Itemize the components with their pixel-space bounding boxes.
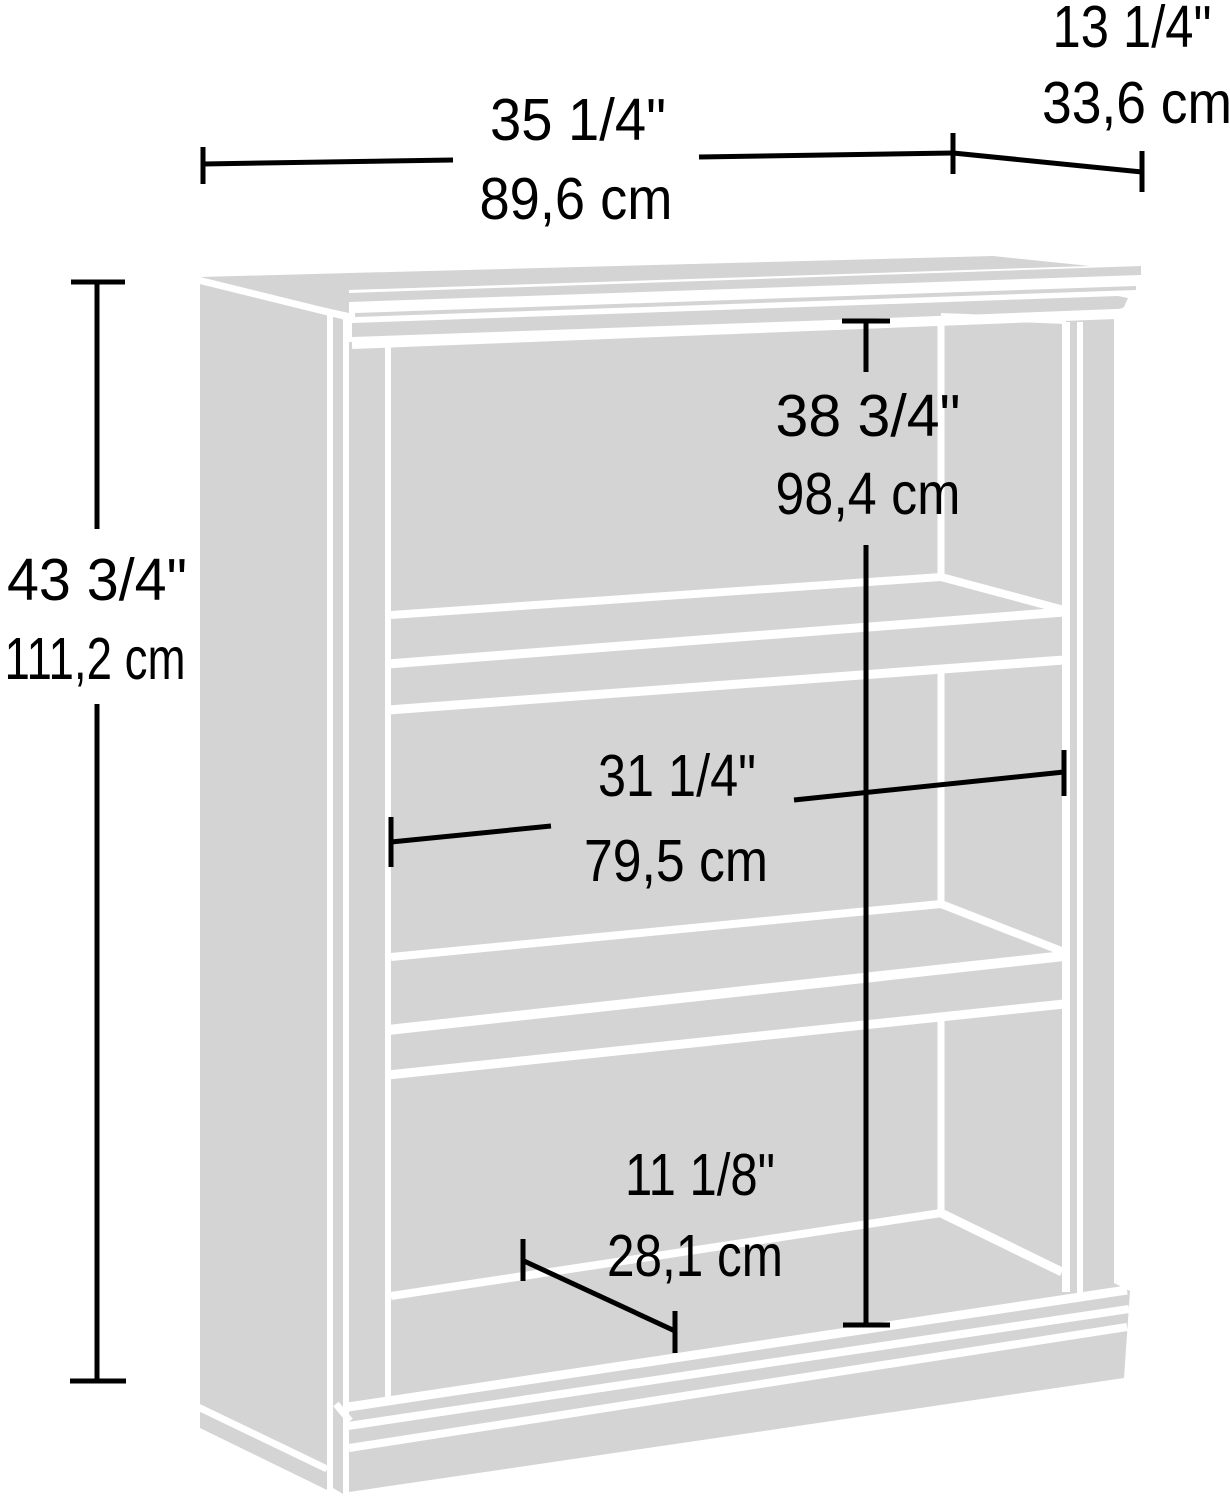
- svg-text:38 3/4": 38 3/4": [776, 383, 961, 449]
- svg-text:111,2 cm: 111,2 cm: [5, 626, 186, 692]
- svg-text:79,5 cm: 79,5 cm: [584, 828, 768, 894]
- svg-text:89,6 cm: 89,6 cm: [480, 166, 673, 232]
- svg-text:43 3/4": 43 3/4": [7, 547, 187, 613]
- svg-text:13 1/4": 13 1/4": [1053, 0, 1212, 60]
- svg-text:33,6 cm: 33,6 cm: [1042, 70, 1230, 136]
- svg-text:31 1/4": 31 1/4": [598, 743, 756, 809]
- svg-text:11 1/8": 11 1/8": [625, 1142, 775, 1208]
- svg-text:98,4 cm: 98,4 cm: [776, 461, 961, 527]
- svg-text:28,1 cm: 28,1 cm: [607, 1223, 783, 1289]
- svg-text:35 1/4": 35 1/4": [490, 87, 666, 153]
